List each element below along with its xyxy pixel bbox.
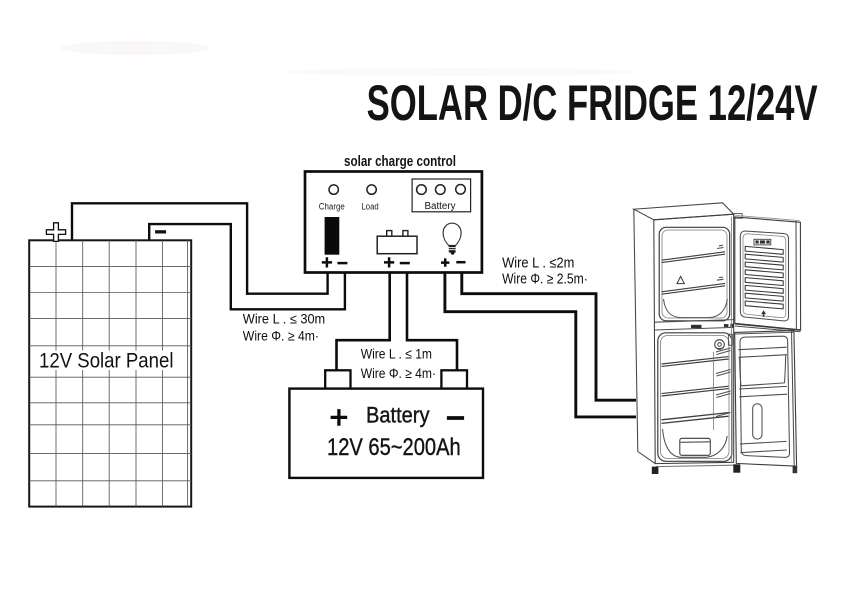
svg-text:Load: Load (362, 202, 379, 212)
svg-text:solar charge control: solar charge control (344, 153, 456, 170)
svg-text:Wire L . ≤2m: Wire L . ≤2m (502, 255, 574, 271)
svg-text:12V Solar Panel: 12V Solar Panel (39, 348, 174, 372)
svg-text:Battery: Battery (425, 201, 456, 212)
svg-text:Wire L . ≤ 1m: Wire L . ≤ 1m (361, 345, 432, 361)
svg-text:Wire Φ. ≥ 4m·: Wire Φ. ≥ 4m· (361, 365, 436, 381)
svg-text:Wire Φ. ≥ 2.5m·: Wire Φ. ≥ 2.5m· (502, 272, 588, 288)
svg-text:Battery: Battery (366, 403, 430, 428)
svg-text:Wire Φ. ≥ 4m·: Wire Φ. ≥ 4m· (243, 329, 319, 344)
svg-text:Charge: Charge (319, 202, 345, 212)
svg-text:SOLAR D/C FRIDGE 12/24V: SOLAR D/C FRIDGE 12/24V (367, 75, 818, 131)
svg-text:12V 65~200Ah: 12V 65~200Ah (327, 434, 461, 461)
svg-text:Wire L . ≤ 30m: Wire L . ≤ 30m (243, 312, 325, 327)
